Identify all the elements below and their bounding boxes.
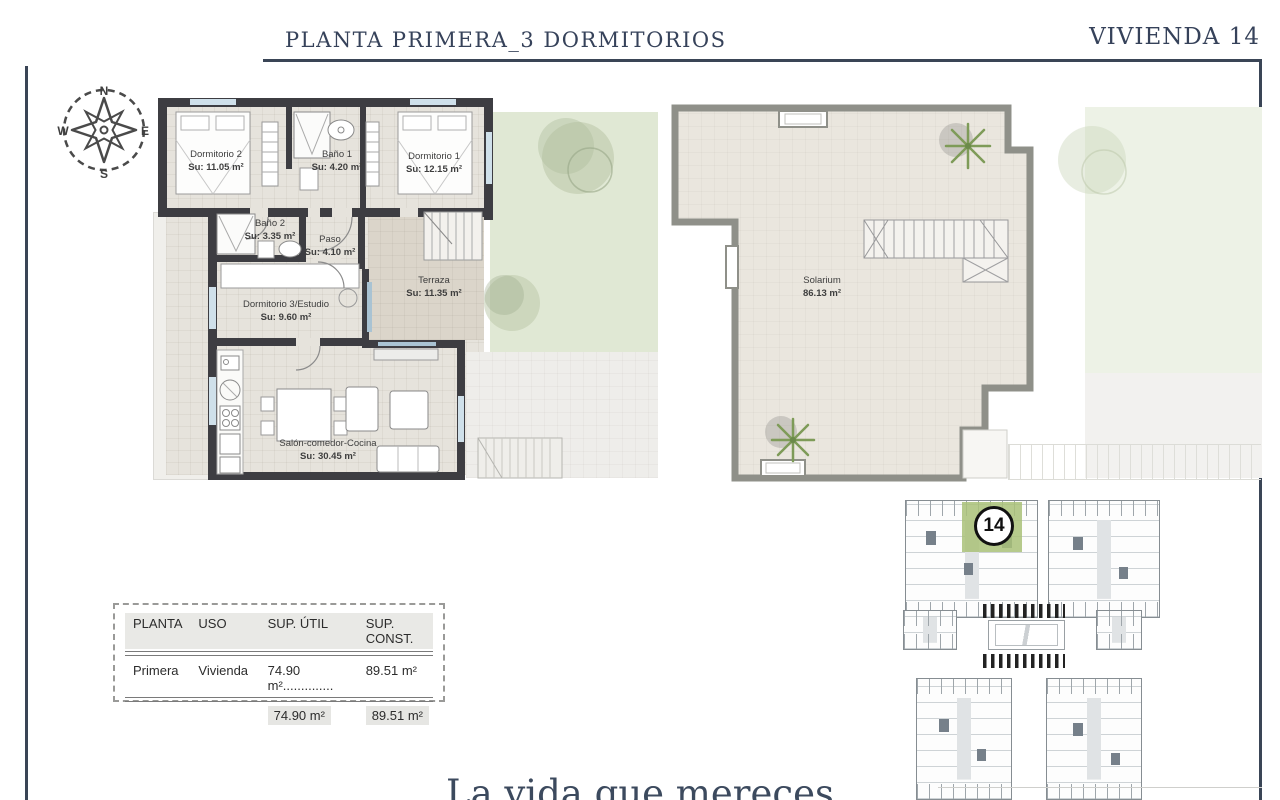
floorplan-page: PLANTA PRIMERA_3 DORMITORIOS VIVIENDA 14… — [0, 0, 1280, 800]
neighbor-garden-faded — [1085, 107, 1262, 373]
cell-sup-const: 89.51 m² — [366, 663, 433, 693]
areas-table-header: PLANTA USO SUP. ÚTIL SUP. CONST. — [125, 613, 433, 649]
room-label-dormitorio-2: Dormitorio 2Su: 11.05 m² — [188, 149, 243, 175]
unit-14-marker: 14 — [974, 506, 1014, 546]
room-label-salon: Salón-comedor-CocinaSu: 30.45 m² — [279, 438, 376, 464]
cell-planta: Primera — [125, 663, 198, 693]
garden-area — [490, 112, 658, 352]
table-divider-2 — [125, 697, 433, 702]
table-divider — [125, 651, 433, 656]
frame-left-border — [25, 66, 28, 800]
parking-row-top — [983, 604, 1065, 618]
room-label-dormitorio-3: Dormitorio 3/EstudioSu: 9.60 m² — [243, 299, 329, 325]
col-sup-const: SUP. CONST. — [366, 616, 433, 646]
header-rule — [263, 59, 1261, 62]
room-label-terraza: TerrazaSu: 11.35 m² — [406, 275, 461, 301]
site-cluster-right — [1096, 610, 1142, 650]
room-label-solarium: Solarium86.13 m² — [803, 275, 841, 301]
compass-s: S — [100, 167, 108, 181]
garden-deck — [466, 352, 658, 478]
cell-sup-util: 74.90 m².............. — [268, 663, 366, 693]
faded-stairs — [1008, 444, 1261, 480]
compass-w: W — [57, 124, 69, 138]
room-label-bano-2: Baño 2Su: 3.35 m² — [245, 218, 296, 244]
cell-uso: Vivienda — [198, 663, 267, 693]
page-title: PLANTA PRIMERA_3 DORMITORIOS — [285, 28, 727, 52]
table-row: Primera Vivienda 74.90 m².............. … — [125, 661, 433, 695]
parking-row-bottom — [983, 654, 1065, 668]
compass-n: N — [100, 84, 109, 98]
col-sup-util: SUP. ÚTIL — [268, 616, 366, 646]
col-planta: PLANTA — [125, 616, 198, 646]
room-label-bano-1: Baño 1Su: 4.20 m² — [312, 149, 363, 175]
table-totals: 74.90 m² 89.51 m² — [125, 708, 433, 723]
unit-title: VIVIENDA 14 — [1089, 24, 1260, 50]
areas-table: PLANTA USO SUP. ÚTIL SUP. CONST. Primera… — [113, 603, 445, 702]
total-sup-util: 74.90 m² — [268, 706, 331, 725]
site-block-b — [1048, 500, 1160, 618]
site-cluster-left — [903, 610, 957, 650]
tagline: La vida que mereces — [0, 772, 1280, 800]
solarium-floor — [675, 108, 1030, 478]
compass-rose-icon: N E S W — [52, 78, 157, 183]
pool — [988, 620, 1065, 650]
dot-leader: .............. — [283, 678, 334, 693]
compass-e: E — [141, 124, 149, 138]
col-uso: USO — [198, 616, 267, 646]
total-sup-const: 89.51 m² — [366, 706, 429, 725]
room-label-dormitorio-1: Dormitorio 1Su: 12.15 m² — [406, 151, 462, 177]
room-label-paso: PasoSu: 4.10 m² — [305, 234, 356, 260]
site-plan: 14 — [900, 492, 1265, 800]
